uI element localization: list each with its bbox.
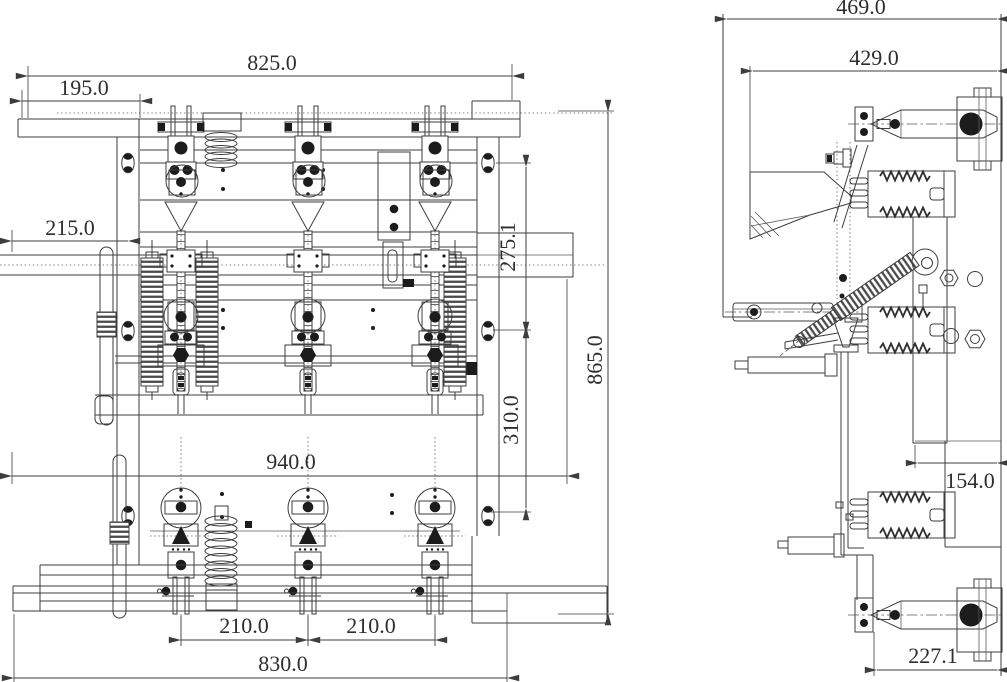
mechanism: [725, 142, 985, 555]
dim-label-mid-width: 940.0: [266, 449, 316, 474]
dim-label-lower-height: 310.0: [498, 395, 523, 445]
mechanism-housing: [378, 152, 414, 288]
earthing-spring-bottom: [205, 506, 252, 610]
closing-spring-top: [203, 113, 241, 168]
pole-assembly-bottom-1: [158, 437, 202, 646]
frame-slot: [482, 321, 494, 341]
dim-label-overall-height: 865.0: [582, 335, 607, 385]
upper-blade: [855, 88, 1002, 170]
pole-assembly-bottom-3: [412, 437, 456, 646]
dim-label-pole-pitch-left: 210.0: [219, 613, 269, 638]
pole-assembly-top-2: [285, 106, 331, 414]
post-insulator: [196, 240, 218, 400]
dim-label-overall-depth: 469.0: [836, 0, 886, 19]
operating-rod-lower: [110, 455, 129, 618]
frame-slot: [482, 153, 494, 173]
dim-label-top-width: 825.0: [247, 50, 297, 75]
front-frame: [0, 119, 573, 565]
bellows-lower: [850, 492, 955, 538]
dim-label-top-left-offset: 195.0: [59, 75, 109, 100]
enclosure-profile: [750, 172, 851, 239]
dim-label-lower-terminal-depth: 227.1: [908, 643, 958, 668]
dim-label-upper-height: 275.1: [495, 222, 520, 272]
frame-slot: [122, 153, 134, 173]
dim-label-left-offset: 215.0: [45, 215, 95, 240]
frame-slot: [482, 506, 494, 526]
dim-label-base-width: 830.0: [258, 651, 308, 676]
side-view: 469.0 429.0 154.0 227.1: [723, 0, 1004, 676]
dim-label-frame-depth: 154.0: [945, 468, 995, 493]
technical-drawing: 825.0 195.0 215.0 275.1 310.0 865.0 940.…: [0, 0, 1007, 682]
bellows-middle: [850, 307, 955, 353]
operating-rod-upper: [97, 247, 116, 425]
frame-slot: [122, 321, 134, 341]
lower-linkage: [778, 534, 873, 600]
dim-label-upper-depth: 429.0: [849, 45, 899, 70]
bellows-upper: [850, 171, 955, 217]
dim-label-pole-pitch-right: 210.0: [346, 613, 396, 638]
front-view: 825.0 195.0 215.0 275.1 310.0 865.0 940.…: [0, 50, 614, 682]
